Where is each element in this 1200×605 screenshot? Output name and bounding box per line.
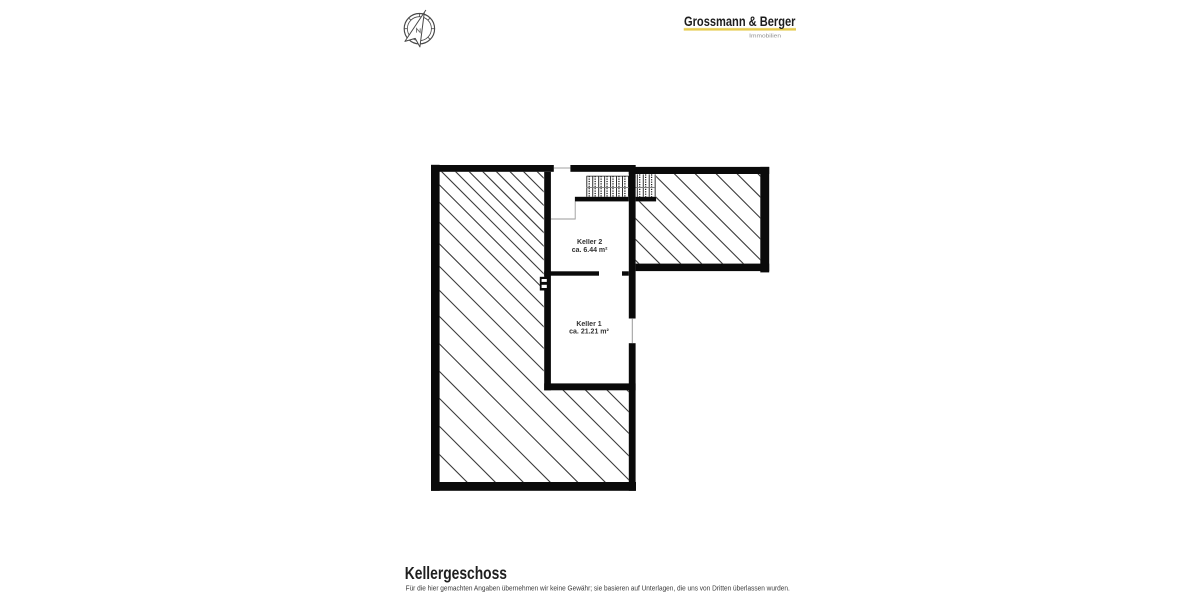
svg-text:Keller 2: Keller 2: [577, 239, 602, 246]
svg-text:ca. 6.44 m²: ca. 6.44 m²: [572, 247, 608, 254]
svg-text:Keller 1: Keller 1: [576, 321, 601, 328]
svg-text:Immobilien: Immobilien: [749, 34, 781, 40]
svg-text:ca. 21.21 m²: ca. 21.21 m²: [569, 329, 609, 336]
svg-text:Grossmann & Berger: Grossmann & Berger: [684, 14, 796, 29]
svg-text:Für die hier gemachten Angaben: Für die hier gemachten Angaben übernehme…: [406, 583, 790, 592]
svg-text:Kellergeschoss: Kellergeschoss: [405, 563, 507, 583]
